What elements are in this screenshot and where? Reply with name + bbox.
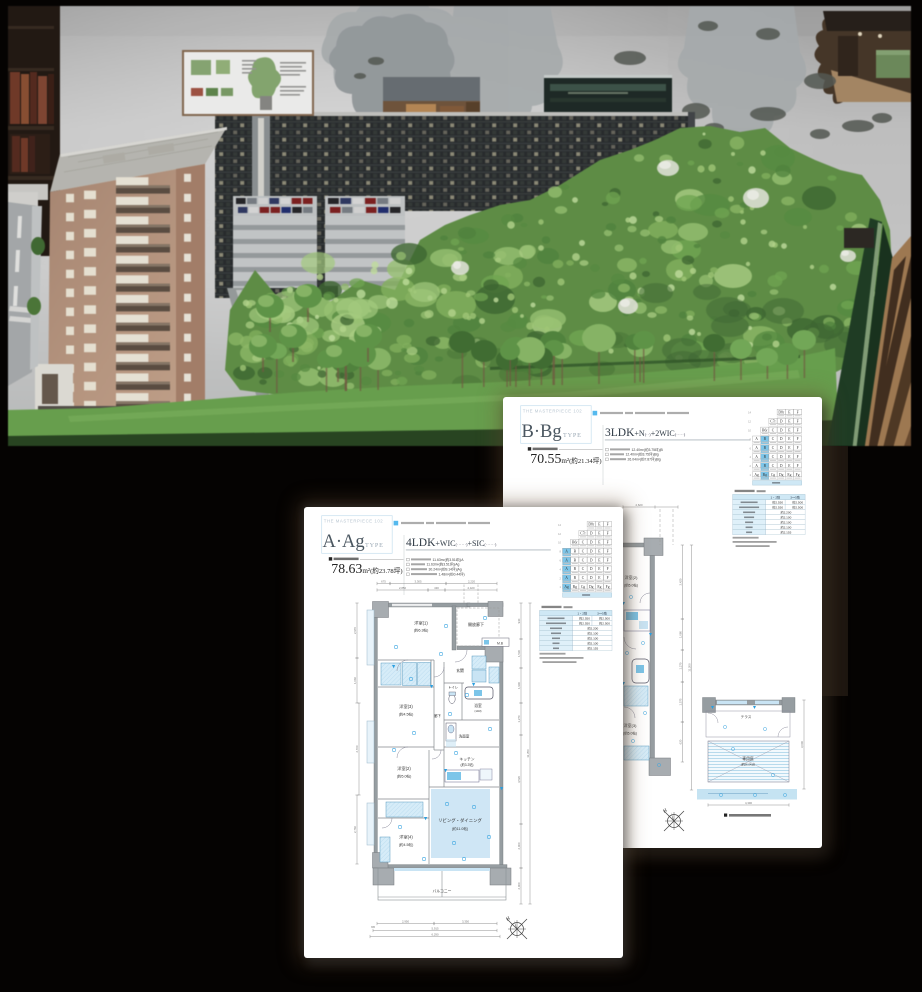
svg-text:F: F — [607, 558, 609, 562]
svg-text:約2,500: 約2,500 — [599, 621, 610, 626]
svg-text:1,080: 1,080 — [678, 631, 682, 638]
svg-text:(約6.3帖): (約6.3帖) — [414, 628, 429, 633]
svg-text:D: D — [780, 437, 783, 441]
svg-text:A: A — [565, 576, 568, 580]
svg-text:D: D — [590, 549, 593, 553]
svg-text:3,000: 3,000 — [800, 741, 804, 748]
svg-text:テラス: テラス — [741, 714, 752, 719]
svg-text:F: F — [607, 549, 609, 553]
svg-text:洋室(3): 洋室(3) — [624, 722, 638, 728]
svg-text:約2,550: 約2,550 — [772, 500, 783, 505]
svg-text:8: 8 — [750, 437, 752, 441]
svg-text:洗面室: 洗面室 — [459, 734, 470, 739]
svg-text:675: 675 — [381, 580, 386, 584]
svg-text:10: 10 — [748, 429, 751, 433]
svg-text:A: A — [565, 567, 568, 571]
svg-text:14: 14 — [558, 523, 561, 527]
svg-text:3LDK+N(··)+2WIC(·····): 3LDK+N(··)+2WIC(·····) — [605, 427, 686, 439]
svg-text:C: C — [582, 576, 585, 580]
svg-text:約2,100: 約2,100 — [781, 515, 792, 520]
svg-text:約2,155: 約2,155 — [587, 646, 598, 651]
svg-text:26.04m²(約7.87坪)|Bg: 26.04m²(約7.87坪)|Bg — [628, 457, 661, 462]
svg-text:3,305: 3,305 — [415, 580, 422, 584]
svg-text:約2,155: 約2,155 — [781, 530, 792, 535]
svg-text:620: 620 — [678, 739, 682, 744]
svg-text:約2,100: 約2,100 — [587, 631, 598, 636]
svg-text:1・2階: 1・2階 — [577, 610, 587, 615]
svg-text:Bg: Bg — [763, 473, 767, 477]
svg-text:A: A — [755, 437, 758, 441]
svg-text:11.63m²(約3.51坪)|Ag: 11.63m²(約3.51坪)|Ag — [427, 562, 460, 567]
svg-text:E: E — [598, 541, 601, 545]
svg-text:E: E — [788, 455, 791, 459]
svg-text:Eg: Eg — [787, 473, 791, 477]
svg-text:D: D — [780, 455, 783, 459]
svg-text:約2,100: 約2,100 — [587, 636, 598, 641]
svg-text:A: A — [565, 558, 568, 562]
svg-text:Eg: Eg — [597, 585, 601, 589]
svg-text:E: E — [788, 464, 791, 468]
svg-text:2,620: 2,620 — [636, 503, 643, 507]
svg-text:C7r: C7r — [580, 532, 586, 536]
svg-text:3～5階: 3～5階 — [790, 494, 800, 499]
svg-text:Bg: Bg — [573, 585, 577, 589]
svg-text:F: F — [797, 446, 799, 450]
svg-text:TYPE: TYPE — [365, 542, 384, 549]
svg-text:約2,500: 約2,500 — [792, 505, 803, 510]
svg-text:11,350: 11,350 — [526, 749, 530, 758]
svg-text:約2,200: 約2,200 — [781, 510, 792, 515]
svg-text:1,270: 1,270 — [517, 715, 521, 722]
svg-text:2: 2 — [750, 464, 752, 468]
svg-text:E: E — [598, 549, 601, 553]
svg-text:D: D — [590, 532, 593, 536]
svg-text:(約5.0帖): (約5.0帖) — [397, 774, 412, 779]
svg-text:約2,200: 約2,200 — [587, 626, 598, 631]
svg-text:B·Bg: B·Bg — [522, 422, 562, 442]
svg-text:THE MASTERPIECE 102: THE MASTERPIECE 102 — [324, 519, 383, 524]
svg-text:C: C — [772, 464, 775, 468]
svg-text:Dg: Dg — [589, 585, 594, 589]
svg-text:F: F — [607, 567, 609, 571]
svg-text:C: C — [772, 455, 775, 459]
svg-text:30.24m²(約9.14坪)|Ag: 30.24m²(約9.14坪)|Ag — [429, 567, 462, 572]
svg-text:E: E — [788, 446, 791, 450]
svg-text:F: F — [607, 532, 609, 536]
svg-text:A: A — [755, 464, 758, 468]
svg-text:6: 6 — [560, 559, 562, 563]
svg-text:2,970: 2,970 — [353, 627, 357, 634]
svg-text:B: B — [574, 576, 577, 580]
svg-text:1: 1 — [560, 585, 562, 589]
svg-text:8: 8 — [560, 550, 562, 554]
svg-text:4: 4 — [560, 567, 562, 571]
svg-text:3,350: 3,350 — [462, 920, 469, 924]
svg-text:3,420: 3,420 — [678, 578, 682, 585]
svg-text:1,575: 1,575 — [678, 698, 682, 705]
svg-text:玄関: 玄関 — [456, 668, 464, 673]
svg-text:TYPE: TYPE — [563, 432, 582, 439]
svg-text:D: D — [780, 464, 783, 468]
svg-text:70.55m²(約21.34坪): 70.55m²(約21.34坪) — [530, 451, 601, 466]
svg-text:2,220: 2,220 — [468, 580, 475, 584]
svg-text:C: C — [772, 428, 775, 432]
svg-text:D: D — [590, 576, 593, 580]
svg-text:M.B: M.B — [497, 642, 504, 646]
svg-text:F: F — [607, 523, 609, 527]
svg-text:F: F — [607, 541, 609, 545]
svg-text:F: F — [797, 428, 799, 432]
svg-text:(約5.0帖): (約5.0帖) — [623, 731, 637, 736]
svg-text:4,390: 4,390 — [745, 801, 752, 805]
svg-text:D: D — [590, 558, 593, 562]
svg-text:E: E — [788, 437, 791, 441]
svg-text:14: 14 — [748, 411, 751, 415]
svg-text:10: 10 — [558, 541, 561, 545]
svg-text:2,760: 2,760 — [355, 745, 359, 752]
svg-text:430: 430 — [434, 586, 439, 590]
svg-text:1,530: 1,530 — [517, 650, 521, 657]
svg-text:約2,550: 約2,550 — [579, 616, 590, 621]
svg-text:約2,550: 約2,550 — [579, 621, 590, 626]
svg-text:1,900: 1,900 — [517, 682, 521, 689]
svg-text:Fg: Fg — [796, 473, 800, 477]
svg-text:約2,550: 約2,550 — [772, 505, 783, 510]
svg-text:B6r: B6r — [572, 541, 578, 545]
svg-text:12.40m²(約3.75坪)|B: 12.40m²(約3.75坪)|B — [632, 447, 664, 452]
svg-text:D8r: D8r — [588, 523, 595, 527]
svg-text:E: E — [788, 428, 791, 432]
svg-text:B: B — [574, 549, 577, 553]
svg-text:6,290: 6,290 — [432, 933, 439, 937]
svg-text:Cg: Cg — [581, 585, 585, 589]
svg-text:専用庭: 専用庭 — [742, 756, 754, 761]
svg-text:A: A — [565, 549, 568, 553]
svg-text:(約11.0帖): (約11.0帖) — [452, 826, 468, 831]
svg-text:Fg: Fg — [606, 585, 610, 589]
svg-text:C: C — [582, 567, 585, 571]
svg-text:D8r: D8r — [778, 411, 785, 415]
svg-text:開放廊下: 開放廊下 — [468, 621, 484, 627]
svg-text:D: D — [780, 428, 783, 432]
svg-text:1,270: 1,270 — [678, 662, 682, 669]
svg-text:Dg: Dg — [779, 473, 784, 477]
svg-text:E: E — [788, 419, 791, 423]
svg-text:約2,100: 約2,100 — [587, 641, 598, 646]
svg-text:(約3.2帖): (約3.2帖) — [461, 762, 474, 767]
svg-text:365: 365 — [371, 926, 376, 929]
svg-text:D: D — [590, 567, 593, 571]
svg-text:2,420: 2,420 — [468, 586, 475, 590]
svg-text:E: E — [598, 558, 601, 562]
svg-text:2,000: 2,000 — [517, 882, 521, 889]
svg-text:78.63m²(約23.78坪): 78.63m²(約23.78坪) — [331, 561, 402, 576]
svg-text:2,760: 2,760 — [353, 826, 357, 833]
svg-text:洋室(2): 洋室(2) — [625, 574, 639, 580]
svg-text:5,915: 5,915 — [432, 927, 439, 931]
svg-text:D: D — [590, 541, 593, 545]
svg-text:約2,100: 約2,100 — [781, 520, 792, 525]
svg-text:C7r: C7r — [770, 419, 776, 423]
svg-text:C: C — [772, 437, 775, 441]
svg-text:3～5階: 3～5階 — [597, 610, 607, 615]
svg-text:(1418): (1418) — [475, 710, 482, 713]
svg-text:Ag: Ag — [754, 473, 759, 477]
svg-text:12: 12 — [748, 420, 751, 424]
svg-text:C: C — [582, 558, 585, 562]
svg-text:(約5.0帖): (約5.0帖) — [624, 583, 638, 588]
svg-text:C: C — [582, 549, 585, 553]
svg-text:リビング・ダイニング: リビング・ダイニング — [438, 817, 483, 824]
svg-text:キッチン: キッチン — [459, 757, 474, 762]
svg-text:N: N — [505, 915, 512, 922]
svg-text:洋室(2): 洋室(2) — [397, 765, 411, 772]
svg-text:B6r: B6r — [762, 428, 768, 432]
svg-text:1.48m²(約0.44坪): 1.48m²(約0.44坪) — [439, 572, 465, 577]
svg-text:A·Ag: A·Ag — [323, 532, 365, 552]
svg-text:洋室(1): 洋室(1) — [414, 620, 428, 627]
svg-text:(約26.04㎡): (約26.04㎡) — [741, 763, 756, 767]
svg-text:Cg: Cg — [771, 473, 775, 477]
svg-text:2,850: 2,850 — [399, 586, 406, 590]
svg-text:(約4.5帖): (約4.5帖) — [399, 842, 414, 847]
svg-text:1・2階: 1・2階 — [771, 494, 781, 499]
svg-text:B: B — [574, 567, 577, 571]
svg-text:C: C — [772, 446, 775, 450]
svg-text:1,060: 1,060 — [353, 677, 357, 684]
svg-text:12.40m²(約3.75坪)|Bg: 12.40m²(約3.75坪)|Bg — [626, 452, 659, 457]
svg-text:F: F — [607, 576, 609, 580]
svg-text:4,520: 4,520 — [517, 776, 521, 783]
svg-text:F: F — [797, 411, 799, 415]
svg-text:11.63m²(約3.51坪)|A: 11.63m²(約3.51坪)|A — [433, 557, 465, 562]
svg-text:F: F — [797, 464, 799, 468]
svg-text:2,950: 2,950 — [402, 920, 409, 924]
svg-text:A: A — [755, 455, 758, 459]
svg-text:F: F — [797, 455, 799, 459]
svg-text:(約4.5帖): (約4.5帖) — [399, 712, 414, 717]
svg-text:洋室(4): 洋室(4) — [399, 834, 413, 841]
svg-text:約2,500: 約2,500 — [792, 500, 803, 505]
svg-text:1: 1 — [750, 473, 752, 477]
svg-text:浴室: 浴室 — [474, 703, 482, 708]
svg-text:E: E — [788, 411, 791, 415]
svg-text:B: B — [574, 558, 577, 562]
svg-text:約2,100: 約2,100 — [781, 525, 792, 530]
svg-text:廊下: 廊下 — [434, 713, 441, 718]
svg-text:約2,500: 約2,500 — [599, 616, 610, 621]
svg-text:N: N — [662, 807, 669, 814]
svg-text:E: E — [598, 576, 601, 580]
svg-text:F: F — [797, 419, 799, 423]
svg-text:Ag: Ag — [564, 585, 569, 589]
svg-text:2: 2 — [560, 576, 562, 580]
svg-text:バルコニー: バルコニー — [433, 889, 452, 894]
svg-text:2,000: 2,000 — [517, 842, 521, 849]
svg-text:洋室(3): 洋室(3) — [399, 703, 413, 710]
svg-text:E: E — [598, 532, 601, 536]
svg-text:930: 930 — [517, 618, 521, 623]
svg-text:E: E — [598, 567, 601, 571]
svg-text:F: F — [797, 437, 799, 441]
svg-text:E: E — [598, 523, 601, 527]
svg-text:C: C — [582, 541, 585, 545]
svg-text:D: D — [780, 419, 783, 423]
svg-text:THE MASTERPIECE 102: THE MASTERPIECE 102 — [523, 409, 582, 414]
svg-text:トイレ: トイレ — [448, 686, 459, 690]
svg-text:4LDK+WIC(······)+SIC(······): 4LDK+WIC(······)+SIC(······) — [406, 537, 497, 549]
svg-text:A: A — [755, 446, 758, 450]
svg-text:4: 4 — [750, 455, 752, 459]
svg-text:11,200: 11,200 — [688, 663, 692, 672]
svg-text:12: 12 — [558, 532, 561, 536]
svg-text:D: D — [780, 446, 783, 450]
svg-text:6: 6 — [750, 446, 752, 450]
